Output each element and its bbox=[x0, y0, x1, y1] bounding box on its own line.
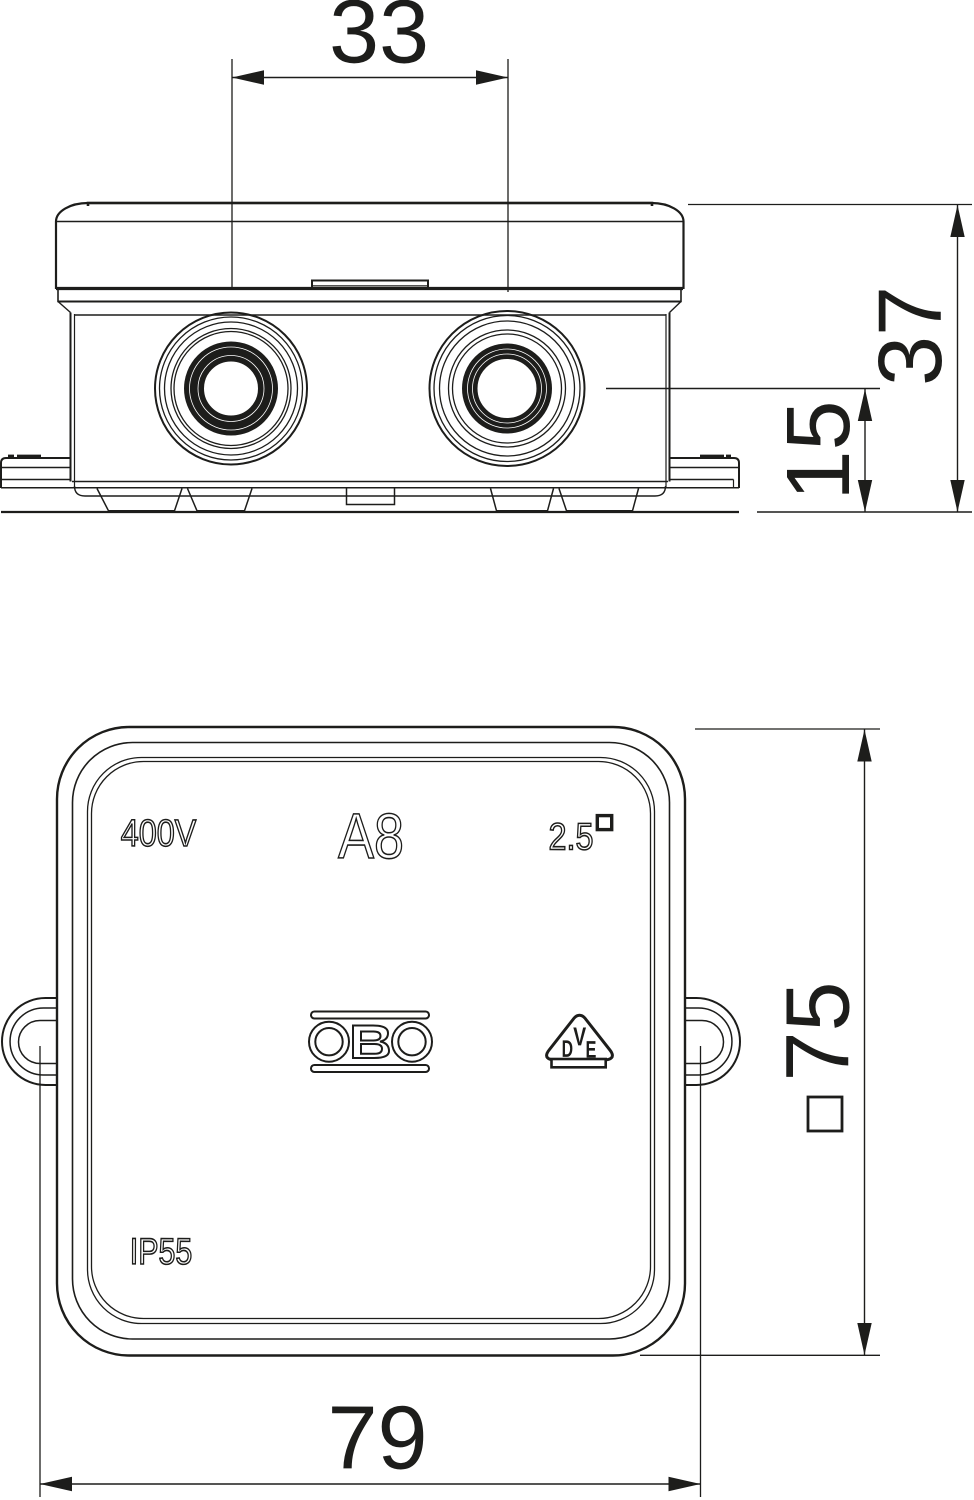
svg-text:IP55: IP55 bbox=[130, 1231, 193, 1273]
svg-text:V: V bbox=[573, 1022, 587, 1051]
svg-text:75: 75 bbox=[769, 981, 869, 1081]
svg-text:37: 37 bbox=[861, 286, 961, 386]
svg-text:33: 33 bbox=[329, 0, 429, 83]
svg-text:79: 79 bbox=[327, 1388, 427, 1488]
svg-text:15: 15 bbox=[769, 400, 869, 500]
svg-text:400V: 400V bbox=[121, 812, 197, 854]
svg-text:A8: A8 bbox=[338, 799, 404, 872]
svg-text:2.5: 2.5 bbox=[549, 816, 594, 858]
